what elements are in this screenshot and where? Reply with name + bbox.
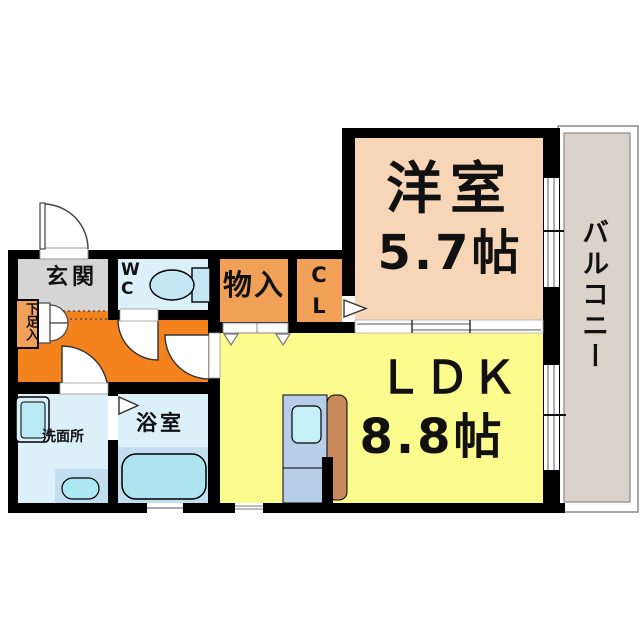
balcony-label: バルコニー bbox=[578, 218, 607, 418]
wall-left bbox=[8, 250, 18, 513]
ldk-size: 8.8帖 bbox=[330, 412, 534, 464]
shoe-cabinet-label: 下足入 bbox=[17, 302, 37, 341]
wall-washroom-top bbox=[18, 382, 220, 394]
entrance-door-arc bbox=[44, 204, 88, 249]
washroom-label: 洗面所 bbox=[42, 430, 84, 445]
genkan-label: 玄関 bbox=[46, 266, 98, 290]
bathroom-label: 浴室 bbox=[136, 412, 184, 435]
wc-label: W C bbox=[121, 261, 140, 299]
washer-icon bbox=[62, 478, 99, 499]
toilet-icon bbox=[150, 270, 194, 300]
wall-western-top bbox=[342, 128, 558, 138]
kitchen-sink-icon bbox=[292, 406, 321, 443]
shoe-cabinet-door-leaf bbox=[38, 303, 50, 343]
entrance-opening bbox=[40, 248, 88, 259]
western-room-label: 洋室 bbox=[355, 160, 545, 220]
wall-bottom bbox=[8, 503, 565, 513]
western-room-size: 5.7帖 bbox=[352, 228, 548, 280]
ldk-door-leaf bbox=[209, 333, 220, 378]
closet-label: C L bbox=[298, 260, 340, 322]
floorplan: 玄関 W C 下足入 物入 C L 洋室 5.7帖 ＬＤＫ 8.8帖 洗面所 浴… bbox=[0, 0, 640, 640]
washroom-door-leaf bbox=[60, 383, 108, 394]
storage-folding-door bbox=[223, 323, 288, 333]
sliding-partition bbox=[355, 320, 543, 333]
ldk-small-window bbox=[235, 503, 263, 513]
entrance-door-leaf bbox=[40, 203, 45, 249]
wc-door-leaf bbox=[120, 309, 158, 321]
kitchen-partition-wall bbox=[322, 457, 333, 503]
ldk-label: ＬＤＫ bbox=[340, 354, 556, 403]
storage-label: 物入 bbox=[218, 270, 290, 301]
bathroom-opening bbox=[108, 396, 118, 440]
bathtub-icon bbox=[122, 454, 206, 499]
